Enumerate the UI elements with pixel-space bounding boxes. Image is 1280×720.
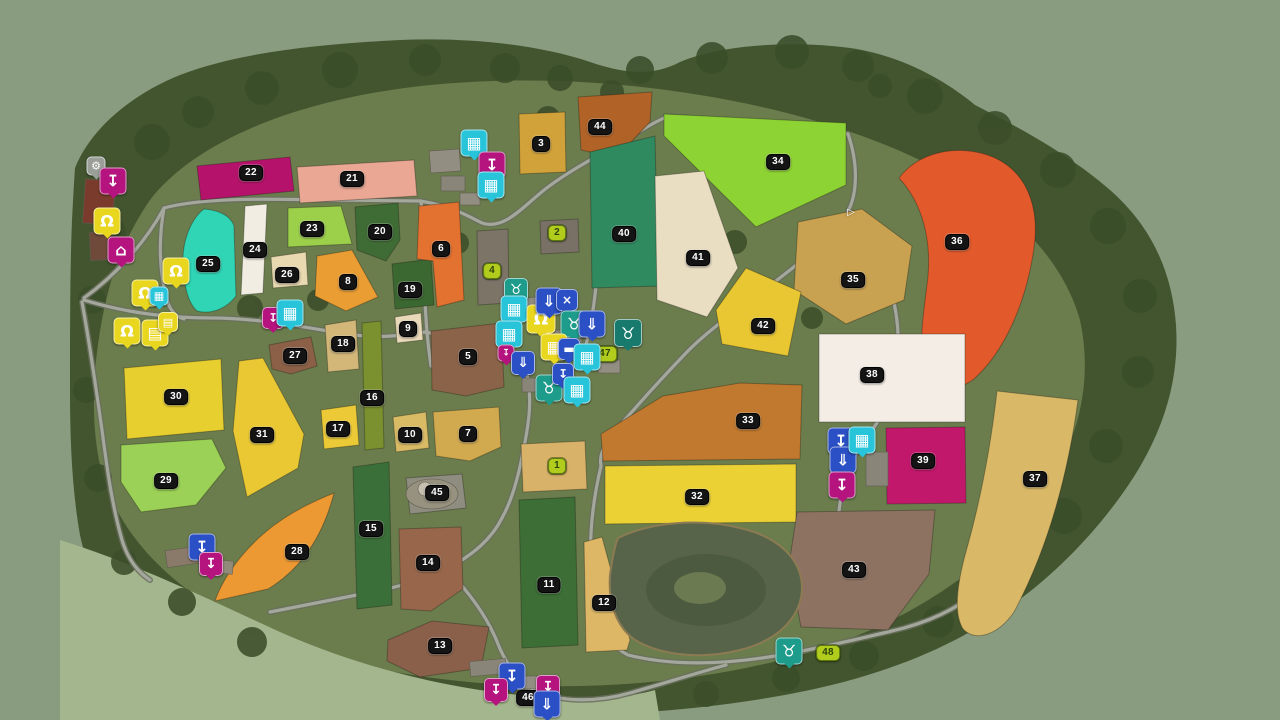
field-badge-26: 26: [275, 267, 299, 283]
map-artwork: [0, 0, 1280, 720]
field-badge-6: 6: [432, 241, 450, 257]
field-badge-45: 45: [425, 485, 449, 501]
sell-point-icon[interactable]: ↧: [484, 678, 508, 702]
field-badge-17: 17: [326, 421, 350, 437]
field-badge-22: 22: [239, 165, 263, 181]
field-badge-4: 4: [483, 263, 501, 279]
map-overview: 1234567891011121314151617181920212223242…: [0, 0, 1280, 720]
document-icon[interactable]: ▤: [158, 312, 178, 332]
field-badge-1: 1: [548, 458, 566, 474]
field-badge-34: 34: [766, 154, 790, 170]
production-icon[interactable]: ▦: [478, 172, 505, 199]
person-icon[interactable]: Ω: [114, 318, 141, 345]
field-badge-39: 39: [911, 453, 935, 469]
field-badge-28: 28: [285, 544, 309, 560]
field-badge-11: 11: [537, 577, 560, 593]
field-badge-13: 13: [428, 638, 452, 654]
production-icon[interactable]: ▦: [150, 287, 169, 306]
field-badge-10: 10: [398, 427, 422, 443]
container-icon[interactable]: ⇓: [534, 691, 561, 718]
container-icon[interactable]: ⇓: [579, 311, 606, 338]
mill-icon[interactable]: ×: [556, 289, 578, 311]
field-badge-33: 33: [736, 413, 760, 429]
sell-point-icon[interactable]: ↧: [199, 552, 223, 576]
field-badge-24: 24: [243, 242, 267, 258]
field-badge-20: 20: [368, 224, 392, 240]
field-badge-41: 41: [686, 250, 710, 266]
field-badge-44: 44: [588, 119, 612, 135]
field-badge-29: 29: [154, 473, 178, 489]
pond: [610, 523, 802, 656]
field-badge-35: 35: [841, 272, 865, 288]
map-arrow-icon: ▷: [843, 204, 859, 220]
animal-goat-icon[interactable]: ♉: [776, 638, 803, 665]
field-badge-7: 7: [459, 426, 477, 442]
field-badge-36: 36: [945, 234, 969, 250]
field-badge-30: 30: [164, 389, 188, 405]
production-icon[interactable]: ▦: [277, 300, 304, 327]
production-icon[interactable]: ▦: [564, 377, 591, 404]
field-badge-12: 12: [592, 595, 616, 611]
field-badge-27: 27: [283, 348, 307, 364]
sell-point-icon[interactable]: ↧: [100, 168, 127, 195]
field-badge-3: 3: [532, 136, 550, 152]
field-badge-25: 25: [196, 256, 220, 272]
field-badge-8: 8: [339, 274, 357, 290]
sell-point-icon[interactable]: ↧: [829, 472, 856, 499]
person-icon[interactable]: Ω: [94, 208, 121, 235]
production-icon[interactable]: ▦: [496, 321, 523, 348]
field-badge-9: 9: [399, 321, 417, 337]
production-icon[interactable]: ▦: [574, 344, 601, 371]
field-badge-18: 18: [331, 336, 355, 352]
bank-icon[interactable]: ⌂: [108, 237, 135, 264]
field-badge-14: 14: [416, 555, 440, 571]
field-badge-40: 40: [612, 226, 636, 242]
field-badge-31: 31: [250, 427, 274, 443]
field-badge-38: 38: [860, 367, 884, 383]
field-16-area: [362, 321, 384, 450]
field-38-area: [819, 334, 965, 422]
field-badge-19: 19: [398, 282, 422, 298]
production-icon[interactable]: ▦: [501, 296, 528, 323]
field-11-area: [519, 497, 578, 648]
production-icon[interactable]: ▦: [849, 427, 876, 454]
field-badge-23: 23: [300, 221, 324, 237]
field-badge-2: 2: [548, 225, 566, 241]
field-badge-43: 43: [842, 562, 866, 578]
field-badge-32: 32: [685, 489, 709, 505]
field-badge-42: 42: [751, 318, 775, 334]
field-badge-15: 15: [359, 521, 383, 537]
field-badge-48: 48: [816, 645, 840, 661]
person-icon[interactable]: Ω: [163, 258, 190, 285]
hopper-icon[interactable]: ⇓: [511, 351, 535, 375]
field-badge-21: 21: [340, 171, 364, 187]
field-badge-16: 16: [360, 390, 384, 406]
field-badge-5: 5: [459, 349, 477, 365]
animal-pig-icon[interactable]: ♉: [614, 319, 642, 347]
field-40-area: [590, 136, 658, 288]
field-badge-37: 37: [1023, 471, 1047, 487]
